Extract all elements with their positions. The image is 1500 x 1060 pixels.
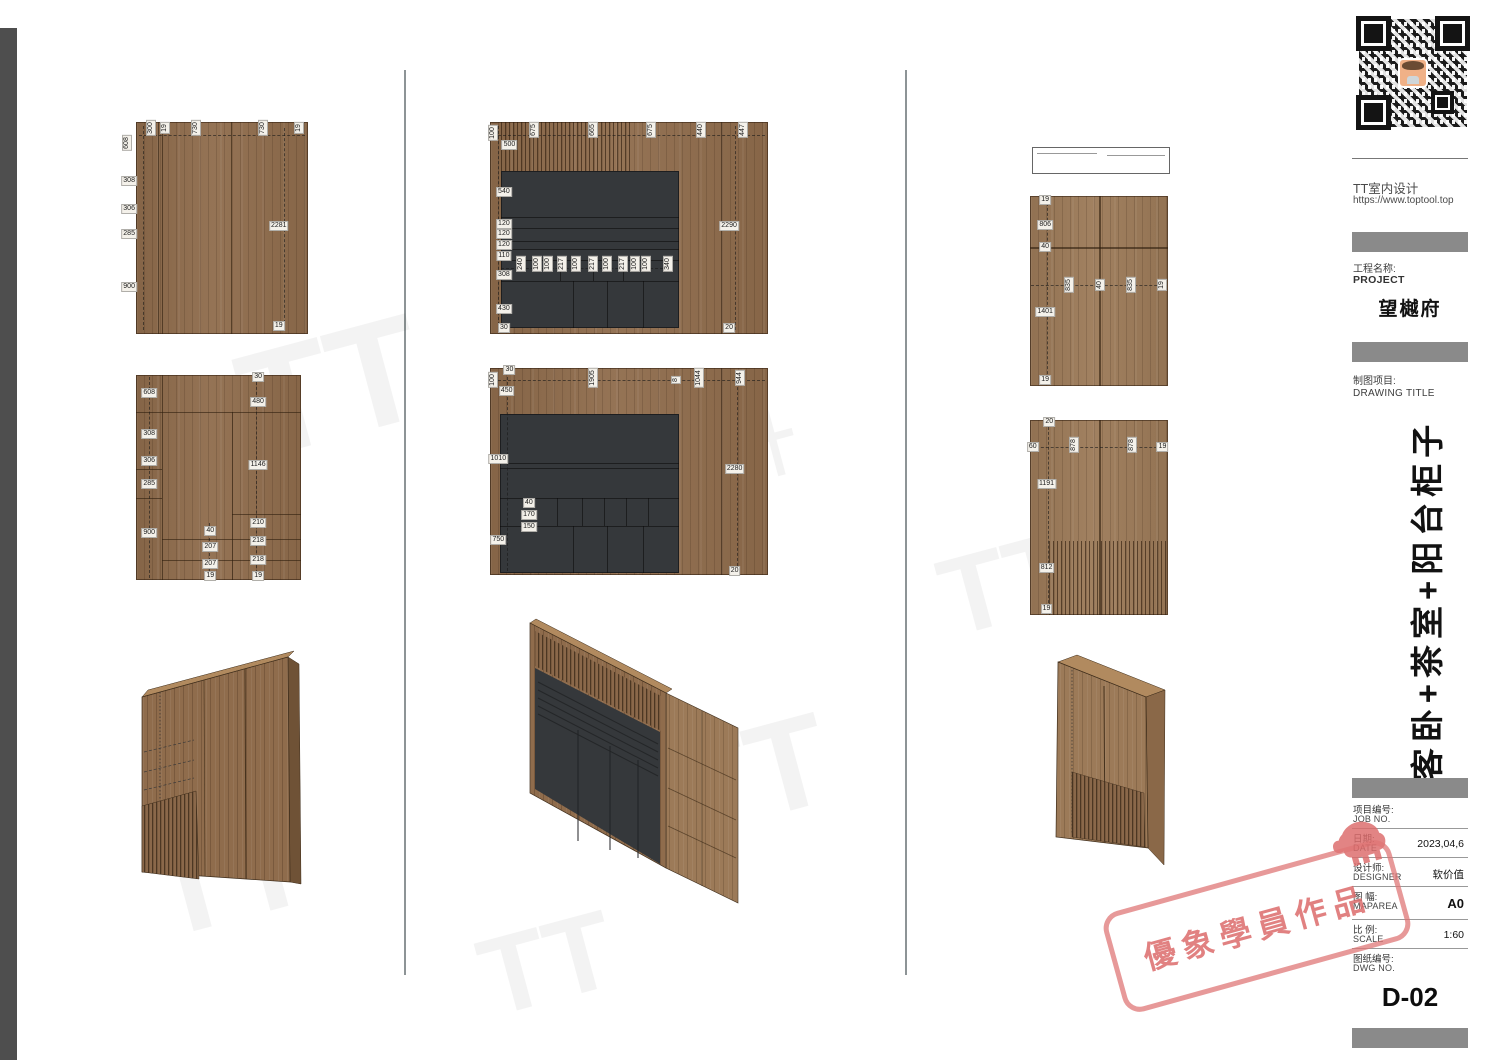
dim-label: 665 [588, 123, 598, 139]
isometric-tearoom-wall [498, 598, 798, 918]
dim-label: 900 [121, 282, 137, 292]
dim-label: 2281 [269, 221, 289, 231]
dim-label: 20 [729, 566, 741, 576]
dim-label: 100 [532, 256, 542, 272]
dim-label: 170 [521, 510, 537, 520]
row-label-en: DWG NO. [1353, 963, 1395, 973]
sheet-number: D-02 [1352, 982, 1468, 1013]
dim-label: 285 [121, 229, 137, 239]
dim-label: 19 [1041, 604, 1053, 614]
elephant-icon [1321, 811, 1398, 879]
row-value: A0 [1447, 896, 1464, 911]
dim-label: 1010 [489, 454, 509, 464]
dim-label: 19 [160, 122, 170, 134]
dim-label: 750 [490, 535, 506, 545]
row-value: 2023,04,6 [1417, 838, 1464, 850]
dim-label: 806 [1037, 220, 1053, 230]
dim-label: 450 [499, 386, 515, 396]
dim-label: 308 [121, 176, 137, 186]
dim-label: 100 [630, 256, 640, 272]
dim-label: 100 [543, 256, 553, 272]
dim-label: 120 [496, 219, 512, 229]
dim-label: 19 [1157, 442, 1169, 452]
dim-label: 8 [671, 376, 681, 384]
dimension-labels: 6083083062859003048011462102182184020720… [136, 375, 301, 580]
dim-label: 20 [723, 323, 735, 333]
dim-label: 1191 [1037, 479, 1056, 489]
dim-label: 240 [516, 256, 526, 272]
project-label-zh: 工程名称: [1353, 260, 1396, 275]
dim-label: 730 [258, 121, 268, 137]
dim-label: 60 [1027, 442, 1039, 452]
dim-label: 19 [273, 321, 285, 331]
elevation-tearoom-internal: 3010045019058104494410104017015075022802… [490, 368, 768, 575]
drawing-title-vertical: 客卧+茶室+阳台柜子 [1395, 440, 1455, 760]
qr-finder-icon [1431, 91, 1454, 114]
avatar [1398, 58, 1428, 88]
drawing-title-label-en: DRAWING TITLE [1353, 388, 1435, 399]
column-divider-2 [905, 70, 907, 975]
dim-label: 1905 [588, 369, 598, 389]
dim-label: 500 [502, 140, 518, 150]
dim-label: 218 [250, 536, 266, 546]
dim-label: 340 [663, 256, 673, 272]
dim-label: 217 [557, 256, 567, 272]
project-label-en: PROJECT [1353, 274, 1405, 286]
dim-label: 608 [141, 388, 157, 398]
column-divider-1 [404, 70, 406, 975]
dimension-labels: 6083001973073019308306285900228119 [136, 122, 308, 334]
dim-label: 100 [641, 256, 651, 272]
stamp-text: 優象學員作品 [1138, 873, 1376, 980]
dim-label: 19 [1039, 375, 1051, 385]
dim-label: 300 [146, 121, 156, 137]
dimension-labels: 206087887819119181219 [1030, 420, 1168, 615]
dim-label: 40 [523, 498, 535, 508]
section-bar [1352, 1028, 1468, 1048]
dim-label: 1044 [694, 369, 704, 389]
dim-label: 100 [488, 373, 498, 389]
divider [1352, 158, 1468, 159]
dim-label: 480 [250, 397, 266, 407]
dim-label: 608 [122, 135, 132, 151]
qr-finder-icon [1435, 16, 1470, 51]
dim-label: 19 [204, 571, 216, 581]
dim-label: 308 [141, 429, 157, 439]
dim-label: 150 [521, 522, 537, 532]
dim-label: 100 [571, 256, 581, 272]
dim-label: 19 [252, 571, 264, 581]
dim-label: 540 [496, 187, 512, 197]
dim-label: 306 [121, 204, 137, 214]
dim-label: 944 [735, 371, 745, 387]
dim-label: 812 [1039, 563, 1055, 573]
dim-label: 207 [202, 559, 218, 569]
isometric-wardrobe [120, 620, 340, 920]
dim-label: 430 [496, 304, 512, 314]
elevation-tearoom-front: 1005006756656754404475401201201201102401… [490, 122, 768, 334]
dim-label: 30 [504, 365, 516, 375]
qr-finder-icon [1356, 16, 1391, 51]
dim-label: 447 [738, 123, 748, 139]
dim-label: 30 [252, 372, 264, 382]
elevation-wardrobe-internal: 6083083062859003048011462102182184020720… [136, 375, 301, 580]
dim-label: 308 [496, 270, 512, 280]
dim-label: 1146 [249, 460, 268, 470]
dim-label: 207 [202, 542, 218, 552]
dim-label: 40 [204, 526, 216, 536]
row-value: 软价值 [1433, 867, 1465, 882]
company-website[interactable]: https://www.toptool.top [1353, 195, 1454, 206]
row-dwg-no: 图纸编号: DWG NO. [1352, 949, 1468, 977]
qr-finder-icon [1356, 95, 1391, 130]
dim-label: 675 [646, 123, 656, 139]
isometric-balcony-cabinet [1028, 638, 1233, 878]
dimension-labels: 19806408354083519140119 [1030, 196, 1168, 386]
dim-label: 40 [1095, 279, 1105, 291]
dim-label: 835 [1064, 277, 1074, 293]
dim-label: 2280 [725, 464, 745, 474]
dim-label: 730 [191, 121, 201, 137]
dim-label: 110 [496, 251, 511, 261]
qr-code [1352, 12, 1474, 134]
dim-label: 306 [141, 456, 157, 466]
dim-label: 217 [588, 256, 598, 272]
left-edge-bar [0, 28, 17, 1060]
section-bar [1352, 232, 1468, 252]
dim-label: 1401 [1035, 307, 1055, 317]
dim-label: 120 [496, 229, 512, 239]
dim-label: 19 [294, 122, 304, 134]
dim-label: 100 [602, 256, 612, 272]
dim-label: 900 [141, 528, 157, 538]
dim-label: 210 [250, 518, 266, 528]
dim-label: 285 [141, 479, 157, 489]
dim-label: 440 [696, 123, 706, 139]
dim-label: 878 [1069, 438, 1079, 454]
drawing-sheet: TT TT 室内设计 TT TT TT TT 60830019730730193… [0, 0, 1500, 1060]
section-bar [1352, 342, 1468, 362]
dim-label: 878 [1127, 438, 1137, 454]
dimension-labels: 1005006756656754404475401201201201102401… [490, 122, 768, 334]
dim-label: 40 [1039, 242, 1051, 252]
project-name: 望樾府 [1352, 294, 1468, 321]
plan-outline [1032, 147, 1170, 174]
dim-label: 120 [496, 240, 512, 250]
row-value: 1:60 [1444, 929, 1464, 941]
dimension-labels: 3010045019058104494410104017015075022802… [490, 368, 768, 575]
dim-label: 30 [498, 323, 510, 333]
dim-label: 217 [618, 256, 628, 272]
dim-label: 675 [529, 123, 539, 139]
dim-label: 218 [250, 555, 266, 565]
section-bar [1352, 778, 1468, 798]
dim-label: 19 [1039, 195, 1051, 205]
dim-label: 835 [1126, 277, 1136, 293]
elevation-balcony-bottom: 206087887819119181219 [1030, 420, 1168, 615]
dim-label: 100 [488, 125, 498, 141]
dim-label: 2290 [719, 221, 739, 231]
dim-label: 19 [1157, 279, 1167, 291]
dim-label: 20 [1043, 417, 1055, 427]
drawing-title-label-zh: 制图项目: [1353, 372, 1396, 387]
elevation-wardrobe-front: 6083001973073019308306285900228119 [136, 122, 308, 334]
elevation-balcony-top: 19806408354083519140119 [1030, 196, 1168, 386]
